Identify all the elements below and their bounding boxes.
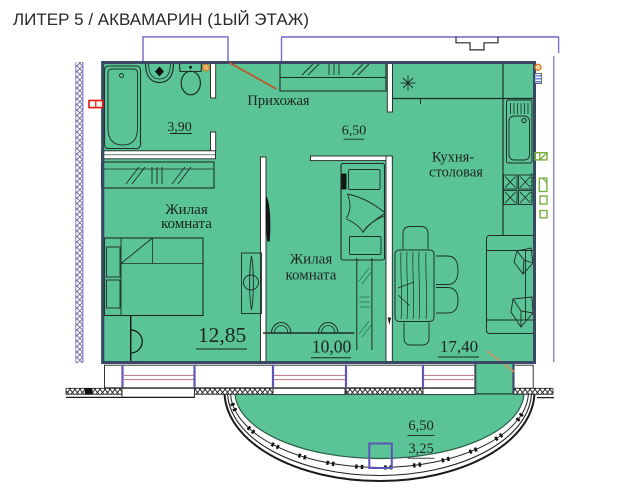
svg-text:комната: комната	[286, 268, 337, 284]
svg-text:3,90: 3,90	[167, 120, 192, 135]
svg-text:столовая: столовая	[429, 165, 483, 181]
svg-text:Кухня-: Кухня-	[432, 150, 475, 166]
svg-text:17,40: 17,40	[440, 337, 478, 356]
svg-text:комната: комната	[161, 216, 212, 232]
svg-text:ЛИТЕР 5 / АКВАМАРИН (1ЫЙ ЭТАЖ): ЛИТЕР 5 / АКВАМАРИН (1ЫЙ ЭТАЖ)	[13, 10, 309, 29]
svg-text:Прихожая: Прихожая	[247, 93, 310, 109]
svg-text:6,50: 6,50	[342, 124, 367, 139]
svg-text:12,85: 12,85	[198, 323, 246, 347]
svg-text:Жилая: Жилая	[290, 252, 333, 268]
svg-text:6,50: 6,50	[408, 418, 433, 434]
svg-text:10,00: 10,00	[312, 337, 352, 357]
svg-text:3,25: 3,25	[408, 441, 433, 457]
